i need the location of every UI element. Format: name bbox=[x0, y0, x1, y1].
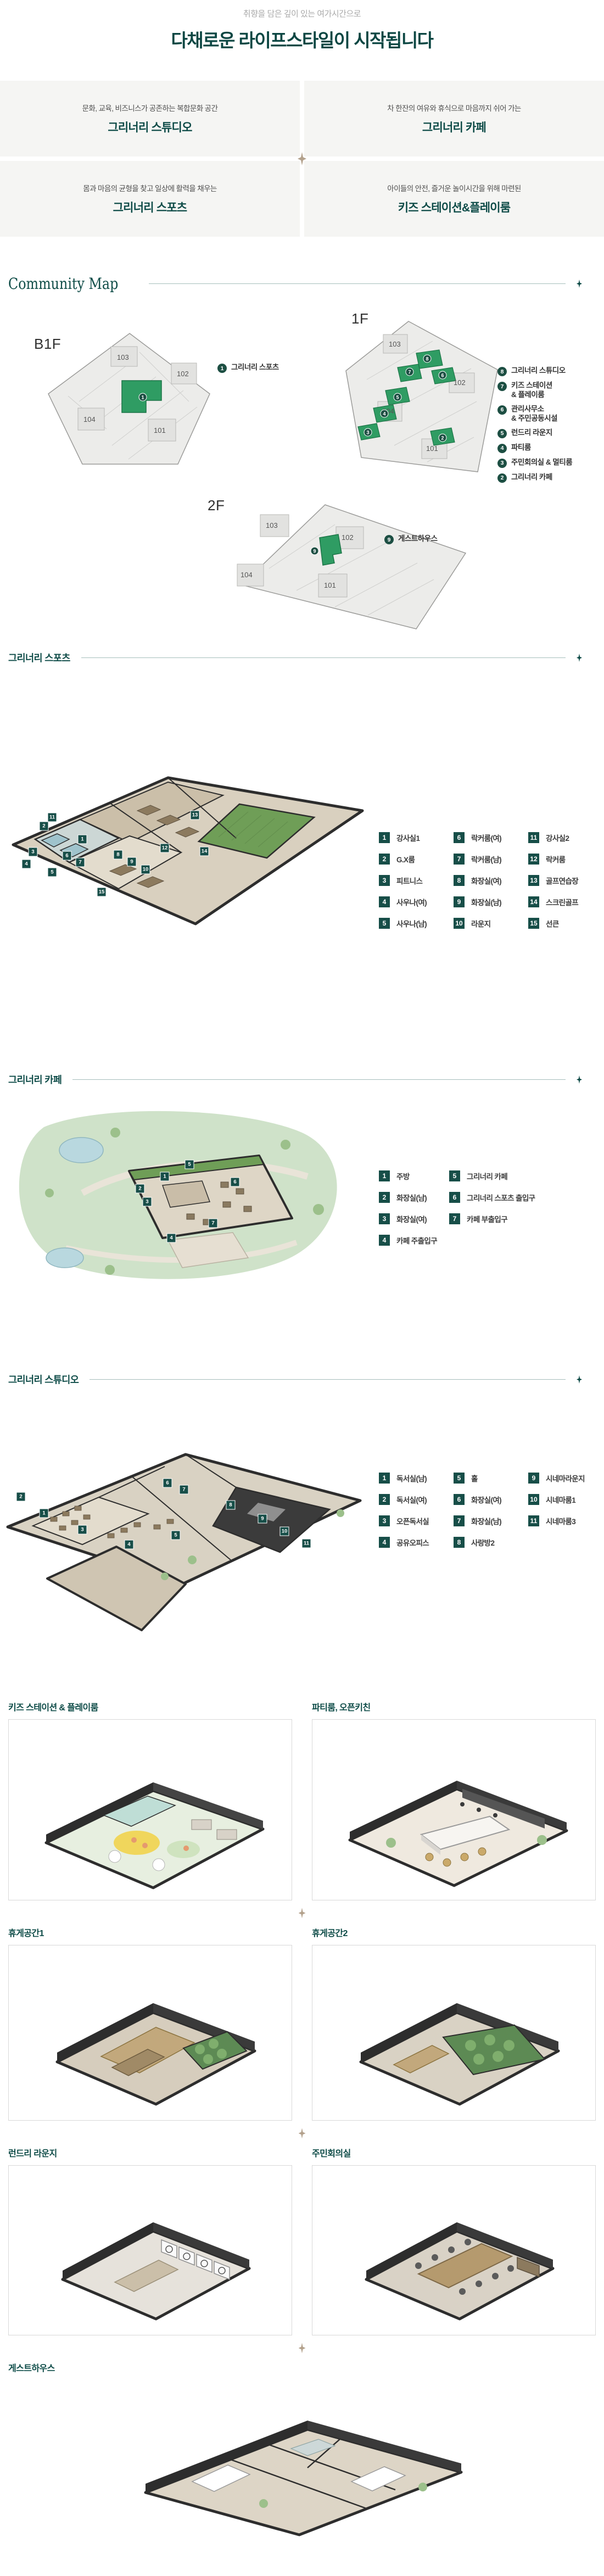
building-number: 104 bbox=[83, 415, 96, 423]
floor-label-2f: 2F bbox=[208, 497, 225, 514]
building-number: 102 bbox=[454, 378, 466, 387]
row-separator bbox=[0, 2121, 604, 2146]
legend-badge: 6 bbox=[454, 832, 465, 843]
plan-badge: 5 bbox=[171, 1531, 181, 1540]
legend-item: 1주방 bbox=[379, 1170, 449, 1182]
room-title: 런드리 라운지 bbox=[8, 2146, 292, 2159]
1f-legend: 8그리너리 스튜디오7키즈 스테이션& 플레이룸6관리사무소& 주민공동시설5런… bbox=[497, 366, 572, 488]
legend-item: 9시네마라운지 bbox=[528, 1472, 604, 1484]
map-legend-badge: 6 bbox=[497, 405, 507, 415]
row-separator bbox=[0, 1900, 604, 1926]
legend-badge: 4 bbox=[379, 1537, 390, 1548]
card-title: 그리너리 카페 bbox=[422, 119, 486, 135]
card-kids-station: 아이들의 안전, 즐거운 놀이시간을 위해 마련된 키즈 스테이션&플레이룸 bbox=[304, 161, 604, 237]
map-legend-badge: 4 bbox=[497, 444, 507, 453]
map-legend-label: 런드리 라운지 bbox=[511, 428, 552, 438]
room-title: 키즈 스테이션 & 플레이룸 bbox=[8, 1700, 292, 1713]
legend-label: 시네마라운지 bbox=[546, 1473, 585, 1484]
divider-line bbox=[90, 1379, 566, 1380]
room-row-3: 런드리 라운지 bbox=[0, 2146, 604, 2335]
2f-site-plan: 103 102 104 101 9 bbox=[236, 503, 468, 631]
legend-label: 독서실(남) bbox=[396, 1473, 427, 1484]
legend-item: 8화장실(여) bbox=[454, 874, 528, 886]
legend-badge: 1 bbox=[379, 1473, 390, 1484]
plan-badge: 1 bbox=[40, 1509, 49, 1518]
legend-item: 5그리너리 카페 bbox=[449, 1170, 586, 1182]
legend-column: 1주방2화장실(남)3화장실(여)4카페 주출입구 bbox=[379, 1170, 449, 1306]
legend-item: 6화장실(여) bbox=[454, 1493, 528, 1506]
plan-badge: 5 bbox=[48, 868, 57, 877]
legend-badge: 6 bbox=[454, 1494, 465, 1505]
diamond-separator-icon bbox=[299, 2343, 306, 2354]
card-greenery-cafe: 차 한잔의 여유와 휴식으로 마음까지 쉬어 가는 그리너리 카페 bbox=[304, 81, 604, 157]
facility-cards: 문화, 교육, 비즈니스가 공존하는 복합문화 공간 그리너리 스튜디오 차 한… bbox=[0, 81, 604, 237]
community-map-header: Community Map bbox=[0, 275, 604, 293]
building-number: 104 bbox=[241, 571, 253, 579]
plan-badge: 9 bbox=[258, 1514, 267, 1524]
plan-badge: 11 bbox=[48, 813, 57, 822]
plan-badge: 7 bbox=[209, 1219, 218, 1228]
diamond-separator-icon bbox=[299, 2128, 306, 2139]
plan-badge: 4 bbox=[167, 1234, 176, 1243]
legend-badge: 9 bbox=[528, 1473, 539, 1484]
site-plan-badge: 4 bbox=[381, 410, 389, 418]
legend-badge: 14 bbox=[528, 896, 539, 907]
legend-label: 시네마룸3 bbox=[546, 1515, 575, 1526]
section-header: 그리너리 스포츠 bbox=[0, 651, 604, 665]
legend-item: 13골프연습장 bbox=[528, 874, 604, 886]
legend-badge: 12 bbox=[528, 854, 539, 865]
diamond-end-icon bbox=[577, 1375, 582, 1384]
building-number: 103 bbox=[266, 521, 278, 529]
hero: 취향을 담은 깊이 있는 여가시간으로 다채로운 라이프스타일이 시작됩니다 bbox=[0, 0, 604, 81]
legend-item: 9화장실(남) bbox=[454, 896, 528, 908]
section-title: 그리너리 카페 bbox=[8, 1073, 61, 1086]
legend-item: 5사우나(남) bbox=[379, 917, 454, 929]
section-title: 그리너리 스튜디오 bbox=[8, 1373, 79, 1386]
building-number: 101 bbox=[154, 426, 166, 434]
plan-badge: 14 bbox=[200, 847, 209, 856]
card-greenery-studio: 문화, 교육, 비즈니스가 공존하는 복합문화 공간 그리너리 스튜디오 bbox=[0, 81, 300, 157]
page-title: 다채로운 라이프스타일이 시작됩니다 bbox=[0, 26, 604, 52]
plan-badge: 2 bbox=[16, 1492, 26, 1502]
legend-column: 5홀6화장실(여)7화장실(남)8사랑방2 bbox=[454, 1472, 528, 1668]
legend-item: 11강사실2 bbox=[528, 832, 604, 844]
legend-item: 7카페 부출입구 bbox=[449, 1213, 586, 1225]
legend-label: 화장실(여) bbox=[471, 1494, 501, 1505]
hero-subtitle: 취향을 담은 깊이 있는 여가시간으로 bbox=[0, 8, 604, 19]
plan-badge: 2 bbox=[136, 1184, 145, 1194]
plan-badge: 12 bbox=[160, 844, 170, 853]
site-plan-badge: 2 bbox=[439, 434, 447, 442]
plan-badge: 4 bbox=[22, 860, 31, 869]
map-legend-item: 3주민회의실 & 멀티룸 bbox=[497, 458, 572, 468]
legend-badge: 5 bbox=[449, 1170, 460, 1181]
room-title: 파티룸, 오픈키친 bbox=[312, 1700, 596, 1713]
diamond-end-icon bbox=[577, 654, 582, 662]
legend-item: 2화장실(남) bbox=[379, 1191, 449, 1203]
community-map-heading: Community Map bbox=[8, 275, 118, 293]
page: 취향을 담은 깊이 있는 여가시간으로 다채로운 라이프스타일이 시작됩니다 문… bbox=[0, 0, 604, 2576]
plan-badge: 4 bbox=[125, 1540, 134, 1549]
legend-label: 공유오피스 bbox=[396, 1537, 429, 1548]
map-legend-label: 그리너리 스포츠 bbox=[231, 363, 279, 372]
legend-badge: 2 bbox=[379, 854, 390, 865]
room-title: 휴게공간2 bbox=[312, 1926, 596, 1939]
map-legend-badge: 2 bbox=[497, 473, 507, 483]
legend-item: 8사랑방2 bbox=[454, 1536, 528, 1548]
legend-badge: 3 bbox=[379, 1213, 390, 1224]
legend-item: 2독서실(여) bbox=[379, 1493, 454, 1506]
map-legend-item: 9게스트하우스 bbox=[384, 534, 438, 544]
studio-legend: 1독서실(남)2독서실(여)3오픈독서실4공유오피스5홀6화장실(여)7화장실(… bbox=[379, 1472, 604, 1668]
legend-badge: 7 bbox=[449, 1213, 460, 1224]
section-header: 그리너리 스튜디오 bbox=[0, 1373, 604, 1386]
legend-column: 1독서실(남)2독서실(여)3오픈독서실4공유오피스 bbox=[379, 1472, 454, 1668]
legend-item: 3오픈독서실 bbox=[379, 1515, 454, 1527]
legend-column: 1강사실12G.X룸3피트니스4사우나(여)5사우나(남) bbox=[379, 832, 454, 939]
map-legend-label: 게스트하우스 bbox=[398, 534, 438, 544]
card-description: 문화, 교육, 비즈니스가 공존하는 복합문화 공간 bbox=[82, 102, 218, 113]
cafe-legend: 1주방2화장실(남)3화장실(여)4카페 주출입구5그리너리 카페6그리너리 스… bbox=[379, 1170, 586, 1306]
legend-label: 홀 bbox=[471, 1473, 478, 1484]
plan-badge: 1 bbox=[160, 1172, 170, 1181]
site-plan-badge: 6 bbox=[439, 371, 447, 380]
legend-label: 락커룸(남) bbox=[471, 854, 501, 865]
legend-badge: 9 bbox=[454, 896, 465, 907]
legend-badge: 15 bbox=[528, 918, 539, 929]
plan-badge: 3 bbox=[78, 1525, 87, 1535]
section-greenery-studio: 그리너리 스튜디오 bbox=[0, 1373, 604, 1668]
diamond-separator-icon bbox=[299, 1908, 306, 1919]
room-title: 주민회의실 bbox=[312, 2146, 596, 2159]
legend-label: 그리너리 스포츠 출입구 bbox=[467, 1192, 535, 1203]
party-room-render bbox=[312, 1719, 596, 1900]
plan-badge: 7 bbox=[180, 1485, 189, 1495]
legend-column: 11강사실212락커룸13골프연습장14스크린골프15선큰 bbox=[528, 832, 604, 939]
legend-label: 사우나(여) bbox=[396, 896, 427, 907]
legend-item: 11시네마룸3 bbox=[528, 1515, 604, 1527]
legend-label: 화장실(남) bbox=[471, 896, 501, 907]
legend-item: 1독서실(남) bbox=[379, 1472, 454, 1484]
plan-badge: 6 bbox=[63, 851, 72, 861]
card-title: 키즈 스테이션&플레이룸 bbox=[398, 199, 511, 215]
map-legend-label: 파티룸 bbox=[511, 443, 531, 453]
legend-label: 카페 부출입구 bbox=[467, 1213, 507, 1224]
sports-legend: 1강사실12G.X룸3피트니스4사우나(여)5사우나(남)6락커룸(여)7락커룸… bbox=[379, 832, 604, 939]
legend-label: 오픈독서실 bbox=[396, 1515, 429, 1526]
plan-badge: 11 bbox=[302, 1539, 311, 1548]
legend-item: 7화장실(남) bbox=[454, 1515, 528, 1527]
card-description: 아이들의 안전, 즐거운 놀이시간을 위해 마련된 bbox=[387, 182, 521, 193]
legend-label: 라운지 bbox=[471, 918, 490, 929]
map-legend-badge: 9 bbox=[384, 535, 394, 544]
map-legend-item: 7키즈 스테이션& 플레이룸 bbox=[497, 381, 572, 400]
map-legend-label: 그리너리 카페 bbox=[511, 473, 552, 482]
community-map: B1F 103 102 104 101 bbox=[0, 306, 604, 642]
legend-badge: 8 bbox=[454, 1537, 465, 1548]
plan-badge: 10 bbox=[141, 865, 150, 874]
map-legend-item: 4파티룸 bbox=[497, 443, 572, 453]
room-row-4: 게스트하우스 bbox=[0, 2361, 604, 2539]
legend-label: 락커룸(여) bbox=[471, 832, 501, 843]
site-plan-badge: 3 bbox=[364, 428, 372, 437]
section-greenery-sports: 그리너리 스포츠 bbox=[0, 651, 604, 939]
card-title: 그리너리 스포츠 bbox=[113, 199, 187, 215]
legend-label: G.X룸 bbox=[396, 854, 415, 865]
site-plan-badge: 7 bbox=[406, 368, 414, 376]
diamond-end-icon bbox=[577, 280, 582, 288]
map-legend-label: 그리너리 스튜디오 bbox=[511, 366, 566, 376]
legend-badge: 4 bbox=[379, 1235, 390, 1246]
kids-station-render bbox=[8, 1719, 292, 1900]
building-number: 101 bbox=[426, 444, 438, 453]
card-description: 몸과 마음의 균형을 찾고 일상에 활력을 채우는 bbox=[83, 182, 216, 193]
b1f-site-plan: 103 102 104 101 1 bbox=[46, 330, 212, 466]
room-title: 휴게공간1 bbox=[8, 1926, 292, 1939]
meeting-room-render bbox=[312, 2165, 596, 2335]
legend-badge: 10 bbox=[454, 918, 465, 929]
site-plan-badge: 8 bbox=[423, 355, 432, 363]
card-greenery-sports: 몸과 마음의 균형을 찾고 일상에 활력을 채우는 그리너리 스포츠 bbox=[0, 161, 300, 237]
room-title: 게스트하우스 bbox=[8, 2361, 596, 2374]
building-number: 101 bbox=[324, 581, 336, 589]
map-legend-badge: 7 bbox=[497, 382, 507, 391]
map-legend-badge: 5 bbox=[497, 429, 507, 438]
legend-badge: 13 bbox=[528, 875, 539, 886]
legend-item: 12락커룸 bbox=[528, 853, 604, 865]
guesthouse-render bbox=[8, 2380, 596, 2539]
1f-site-plan: 103 102 104 101 8765432 bbox=[345, 319, 500, 482]
legend-label: 락커룸 bbox=[546, 854, 565, 865]
plan-badge: 8 bbox=[226, 1501, 236, 1510]
site-plan-badge: 1 bbox=[139, 393, 147, 402]
legend-item: 6락커룸(여) bbox=[454, 832, 528, 844]
legend-badge: 7 bbox=[454, 854, 465, 865]
plan-badge: 3 bbox=[143, 1197, 152, 1207]
map-legend-label: 키즈 스테이션& 플레이룸 bbox=[511, 381, 552, 400]
cafe-floor-plan: 1234567 bbox=[0, 1094, 369, 1306]
legend-label: 강사실1 bbox=[396, 832, 420, 843]
plan-badge: 7 bbox=[76, 858, 85, 867]
legend-item: 6그리너리 스포츠 출입구 bbox=[449, 1191, 586, 1203]
section-header: 그리너리 카페 bbox=[0, 1073, 604, 1086]
legend-item: 5홀 bbox=[454, 1472, 528, 1484]
legend-item: 10라운지 bbox=[454, 917, 528, 929]
rest-area-1-render bbox=[8, 1945, 292, 2121]
map-legend-item: 8그리너리 스튜디오 bbox=[497, 366, 572, 376]
legend-badge: 6 bbox=[449, 1192, 460, 1203]
legend-label: 골프연습장 bbox=[546, 875, 578, 886]
b1f-legend: 1그리너리 스포츠 bbox=[217, 363, 279, 378]
section-title: 그리너리 스포츠 bbox=[8, 651, 70, 665]
legend-column: 6락커룸(여)7락커룸(남)8화장실(여)9화장실(남)10라운지 bbox=[454, 832, 528, 939]
legend-label: 스크린골프 bbox=[546, 896, 578, 907]
building-number: 103 bbox=[389, 340, 401, 348]
legend-item: 7락커룸(남) bbox=[454, 853, 528, 865]
legend-badge: 3 bbox=[379, 1515, 390, 1526]
rest-area-2-render bbox=[312, 1945, 596, 2121]
map-legend-item: 2그리너리 카페 bbox=[497, 473, 572, 483]
map-legend-label: 관리사무소& 주민공동시설 bbox=[511, 405, 557, 423]
legend-badge: 4 bbox=[379, 896, 390, 907]
legend-item: 1강사실1 bbox=[379, 832, 454, 844]
plan-badge: 15 bbox=[97, 888, 107, 897]
legend-badge: 1 bbox=[379, 1170, 390, 1181]
map-legend-item: 6관리사무소& 주민공동시설 bbox=[497, 405, 572, 423]
legend-label: 화장실(여) bbox=[471, 875, 501, 886]
rooms: 키즈 스테이션 & 플레이룸 파티룸, 오 bbox=[0, 1700, 604, 2539]
legend-label: 화장실(여) bbox=[396, 1213, 427, 1224]
legend-label: 그리너리 카페 bbox=[467, 1170, 507, 1181]
map-legend-badge: 3 bbox=[497, 459, 507, 468]
section-greenery-cafe: 그리너리 카페 bbox=[0, 1073, 604, 1306]
legend-item: 4사우나(여) bbox=[379, 896, 454, 908]
plan-badge: 10 bbox=[280, 1527, 289, 1536]
plan-badge: 9 bbox=[127, 857, 137, 867]
map-legend-item: 5런드리 라운지 bbox=[497, 428, 572, 438]
building-number: 103 bbox=[117, 353, 129, 361]
card-title: 그리너리 스튜디오 bbox=[108, 119, 192, 135]
legend-badge: 11 bbox=[528, 832, 539, 843]
legend-label: 선큰 bbox=[546, 918, 559, 929]
legend-item: 4카페 주출입구 bbox=[379, 1234, 449, 1246]
plan-badge: 13 bbox=[191, 811, 200, 820]
legend-badge: 3 bbox=[379, 875, 390, 886]
legend-badge: 7 bbox=[454, 1515, 465, 1526]
plan-badge: 1 bbox=[78, 835, 87, 844]
plan-badge: 8 bbox=[114, 850, 123, 860]
map-legend-badge: 1 bbox=[217, 364, 227, 373]
plan-badge: 5 bbox=[185, 1160, 194, 1169]
divider-line bbox=[81, 657, 566, 658]
legend-badge: 8 bbox=[454, 875, 465, 886]
plan-badge: 6 bbox=[231, 1178, 240, 1187]
card-description: 차 한잔의 여유와 휴식으로 마음까지 쉬어 가는 bbox=[387, 102, 521, 113]
legend-label: 사랑방2 bbox=[471, 1537, 494, 1548]
map-legend-label: 주민회의실 & 멀티룸 bbox=[511, 458, 572, 467]
building-number: 102 bbox=[177, 370, 189, 378]
legend-label: 카페 주출입구 bbox=[396, 1235, 437, 1246]
diamond-end-icon bbox=[577, 1075, 582, 1084]
legend-label: 화장실(남) bbox=[396, 1192, 427, 1203]
legend-column: 5그리너리 카페6그리너리 스포츠 출입구7카페 부출입구 bbox=[449, 1170, 586, 1306]
site-plan-badge: 9 bbox=[311, 547, 319, 555]
room-row-2: 휴게공간1 휴게공간2 bbox=[0, 1926, 604, 2121]
site-plan-badge: 5 bbox=[394, 393, 402, 402]
legend-item: 4공유오피스 bbox=[379, 1536, 454, 1548]
room-row-1: 키즈 스테이션 & 플레이룸 파티룸, 오 bbox=[0, 1700, 604, 1900]
legend-badge: 2 bbox=[379, 1192, 390, 1203]
sports-floor-plan: 123456789101112131415 bbox=[0, 673, 369, 939]
legend-item: 2G.X룸 bbox=[379, 853, 454, 865]
legend-label: 강사실2 bbox=[546, 832, 569, 843]
legend-label: 주방 bbox=[396, 1170, 410, 1181]
legend-column: 9시네마라운지10시네마룸111시네마룸3 bbox=[528, 1472, 604, 1668]
legend-badge: 5 bbox=[379, 918, 390, 929]
legend-item: 10시네마룸1 bbox=[528, 1493, 604, 1506]
laundry-lounge-render bbox=[8, 2165, 292, 2335]
legend-item: 14스크린골프 bbox=[528, 896, 604, 908]
legend-label: 독서실(여) bbox=[396, 1494, 427, 1505]
plan-badge: 3 bbox=[29, 847, 38, 857]
legend-label: 화장실(남) bbox=[471, 1515, 501, 1526]
row-separator bbox=[0, 2335, 604, 2361]
plan-badge: 6 bbox=[163, 1479, 172, 1488]
legend-badge: 2 bbox=[379, 1494, 390, 1505]
2f-legend: 9게스트하우스 bbox=[384, 534, 438, 549]
legend-item: 3피트니스 bbox=[379, 874, 454, 886]
map-legend-item: 1그리너리 스포츠 bbox=[217, 363, 279, 373]
plan-badge: 2 bbox=[40, 822, 49, 831]
legend-label: 사우나(남) bbox=[396, 918, 427, 929]
divider-line bbox=[149, 283, 566, 284]
divider-line bbox=[72, 1079, 566, 1080]
legend-badge: 5 bbox=[454, 1473, 465, 1484]
legend-badge: 11 bbox=[528, 1515, 539, 1526]
studio-floor-plan: 1234567891011 bbox=[0, 1395, 369, 1668]
map-legend-badge: 8 bbox=[497, 367, 507, 376]
legend-badge: 10 bbox=[528, 1494, 539, 1505]
legend-item: 3화장실(여) bbox=[379, 1213, 449, 1225]
building-number: 102 bbox=[342, 533, 354, 542]
legend-label: 피트니스 bbox=[396, 875, 422, 886]
legend-item: 15선큰 bbox=[528, 917, 604, 929]
legend-label: 시네마룸1 bbox=[546, 1494, 575, 1505]
legend-badge: 1 bbox=[379, 832, 390, 843]
